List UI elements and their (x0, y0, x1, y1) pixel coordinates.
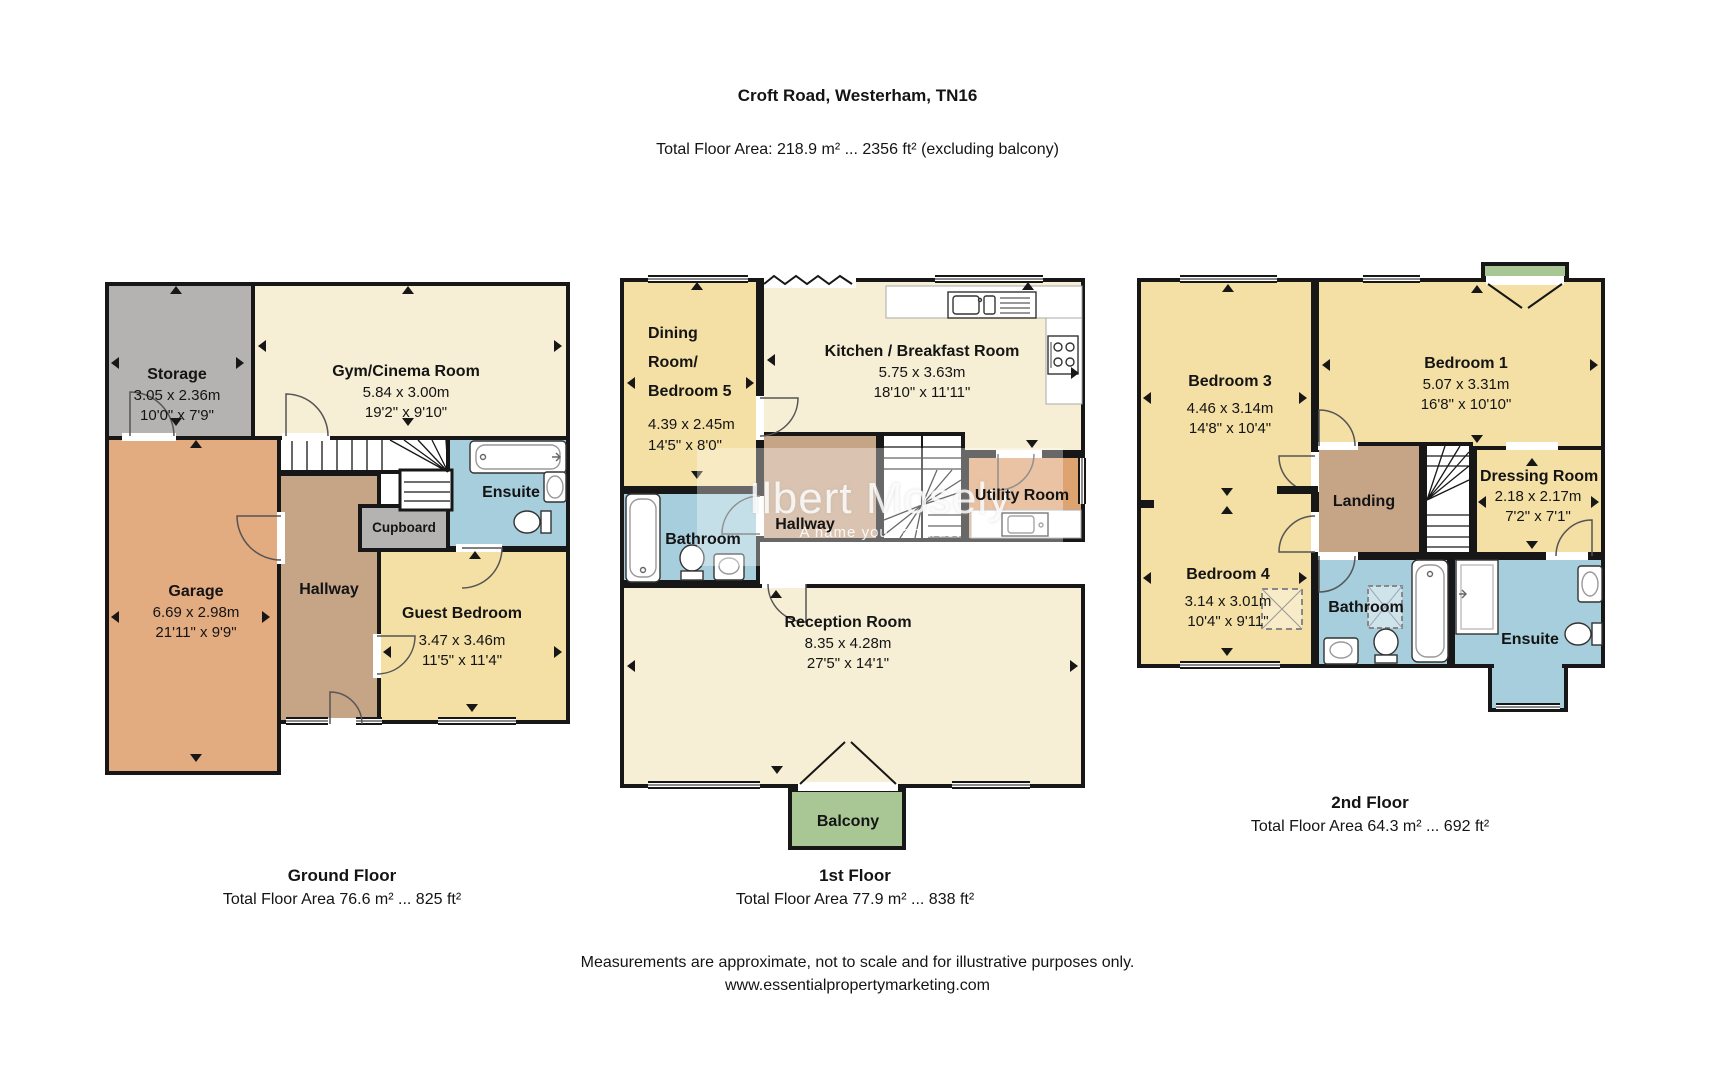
room-ensuite-second (1451, 556, 1605, 668)
label-hallway-ground: Hallway (299, 579, 359, 601)
juliet-balcony (1481, 262, 1569, 280)
label-balcony: Balcony (817, 811, 879, 833)
window (1180, 661, 1280, 669)
stairs-ground (277, 436, 450, 474)
label-cupboard: Cupboard (372, 519, 436, 537)
label-utility: Utility Room (975, 485, 1069, 507)
window (438, 717, 516, 725)
watermark: Ilbert Mosely A name you can trust (697, 448, 1063, 566)
ensuite-bay-opening (1494, 660, 1562, 670)
window (648, 781, 760, 789)
floorplan-page: Croft Road, Westerham, TN16 Total Floor … (0, 0, 1715, 1080)
label-gym: Gym/Cinema Room 5.84 x 3.00m 19'2" x 9'1… (332, 361, 480, 423)
total-area-subtitle: Total Floor Area: 218.9 m² ... 2356 ft² … (0, 141, 1715, 159)
label-bed1: Bedroom 1 5.07 x 3.31m 16'8" x 10'10" (1421, 353, 1512, 415)
label-bed3: Bedroom 3 4.46 x 3.14m 14'8" x 10'4" (1187, 371, 1274, 439)
window (1363, 275, 1420, 283)
label-dining: Dining Room/ Bedroom 5 4.39 x 2.45m 14'5… (648, 320, 734, 456)
label-guest-bedroom: Guest Bedroom 3.47 x 3.46m 11'5" x 11'4" (402, 603, 522, 671)
label-ensuite-ground: Ensuite (482, 482, 540, 504)
label-bed4: Bedroom 4 3.14 x 3.01m 10'4" x 9'11" (1185, 564, 1272, 632)
label-storage: Storage 3.05 x 2.36m 10'0" x 7'9" (134, 364, 221, 426)
window (952, 781, 1030, 789)
stair-treads (404, 482, 450, 501)
caption-second-floor: 2nd Floor Total Floor Area 64.3 m² ... 6… (1170, 793, 1570, 836)
label-dressing: Dressing Room 2.18 x 2.17m 7'2" x 7'1" (1480, 467, 1596, 528)
window (648, 275, 748, 283)
caption-ground-floor: Ground Floor Total Floor Area 76.6 m² ..… (142, 866, 542, 909)
label-ensuite-second: Ensuite (1501, 629, 1559, 651)
label-hallway-first: Hallway (775, 514, 835, 536)
disclaimer-url: www.essentialpropertymarketing.com (0, 974, 1715, 997)
label-bathroom-first: Bathroom (665, 529, 741, 551)
disclaimer: Measurements are approximate, not to sca… (0, 951, 1715, 997)
stairs-second (1423, 442, 1473, 556)
label-kitchen: Kitchen / Breakfast Room 5.75 x 3.63m 18… (825, 341, 1020, 403)
disclaimer-line1: Measurements are approximate, not to sca… (0, 951, 1715, 974)
window (1496, 703, 1560, 711)
window (1180, 275, 1277, 283)
label-reception: Reception Room 8.35 x 4.28m 27'5" x 14'1… (784, 612, 911, 674)
label-landing: Landing (1333, 491, 1395, 513)
page-title: Croft Road, Westerham, TN16 (0, 86, 1715, 106)
caption-first-floor: 1st Floor Total Floor Area 77.9 m² ... 8… (655, 866, 1055, 909)
window (286, 717, 328, 725)
label-garage: Garage 6.69 x 2.98m 21'11" x 9'9" (153, 581, 240, 643)
label-bathroom-second: Bathroom (1328, 597, 1404, 619)
window (1078, 458, 1086, 504)
window (356, 717, 382, 725)
window (935, 275, 1043, 283)
